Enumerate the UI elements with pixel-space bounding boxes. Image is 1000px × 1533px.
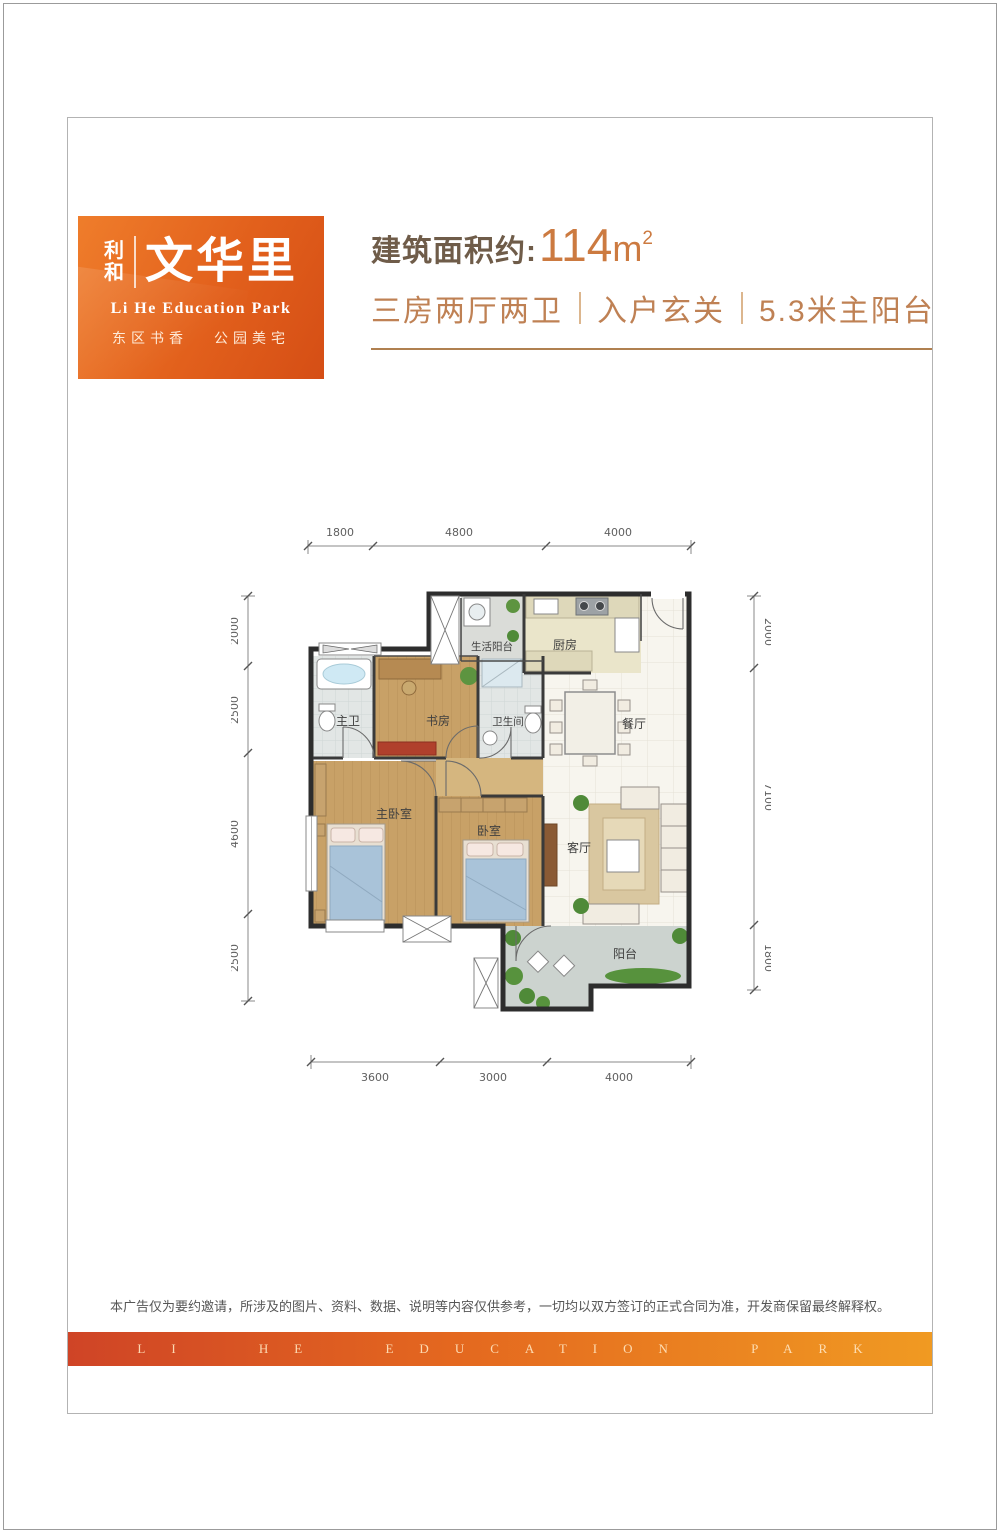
chair [618, 700, 630, 711]
dim-right-3: 1800 [762, 944, 771, 972]
bathtub-water [323, 664, 365, 684]
dim-left-4: 2500 [231, 944, 241, 972]
entry-opening [651, 590, 685, 599]
label-bathroom: 卫生间 [492, 715, 524, 728]
fridge [615, 618, 639, 652]
dim-bottom-1: 3600 [361, 1071, 389, 1084]
chair [550, 744, 562, 755]
logo-tagline-left: 东区书香 [112, 328, 188, 348]
area-label: 建筑面积约: [371, 226, 537, 270]
study-chair [402, 681, 416, 695]
feature-divider [579, 292, 581, 324]
dim-bottom-2: 3000 [479, 1071, 507, 1084]
chair [550, 700, 562, 711]
area-line: 建筑面积约: 114 m2 [371, 218, 932, 272]
flyer-card: 利 和 文华里 Li He Education Park 东区书香 公园美宅 建… [67, 117, 933, 1414]
label-master-bedroom: 主卧室 [376, 806, 412, 821]
label-kitchen: 厨房 [553, 637, 577, 652]
burner-1 [580, 602, 589, 611]
balcony-plant [672, 928, 688, 944]
footer-banner: LI HE EDUCATION PARK [68, 1332, 932, 1366]
logo-tagline-right: 公园美宅 [214, 328, 290, 348]
armchair-top [621, 787, 659, 809]
feature-rooms: 三房两厅两卫 [371, 286, 563, 330]
feature-divider [741, 292, 743, 324]
washing-machine-door [469, 604, 485, 620]
study-rug [378, 742, 436, 755]
label-service-balcony: 生活阳台 [471, 640, 513, 653]
area-unit-base: m [612, 228, 642, 269]
logo-row: 利 和 文华里 [78, 236, 324, 288]
master-blanket [330, 846, 382, 920]
logo-divider [134, 236, 136, 288]
brand-logo: 利 和 文华里 Li He Education Park 东区书香 公园美宅 [78, 216, 324, 379]
blanket [466, 859, 526, 920]
logo-prefix-char-2: 和 [104, 262, 125, 284]
floor-plan: 生活阳台 厨房 主卫 书房 卫生间 餐厅 主卧室 卧室 客厅 阳台 1800 4… [231, 506, 771, 1126]
sink [483, 731, 497, 745]
logo-tagline: 东区书香 公园美宅 [78, 328, 324, 348]
pillow [497, 843, 523, 856]
unit-header: 建筑面积约: 114 m2 三房两厅两卫 入户玄关 5.3米主阳台 [371, 218, 932, 350]
plant-study [460, 667, 478, 685]
toilet [319, 711, 335, 731]
window-master-bottom [326, 920, 384, 932]
dim-left-1: 2000 [231, 617, 241, 645]
label-master-bath: 主卫 [336, 714, 360, 728]
dim-right-2: 7100 [762, 783, 771, 811]
dim-left-3: 4600 [231, 820, 241, 848]
dim-bottom-line [311, 1055, 691, 1069]
nightstand [315, 910, 325, 922]
header-rule [371, 348, 932, 350]
balcony-plant [519, 988, 535, 1004]
corridor-floor [436, 758, 543, 796]
label-balcony: 阳台 [613, 946, 637, 961]
balcony-plant [505, 967, 523, 985]
feature-balcony: 5.3米主阳台 [759, 286, 935, 330]
toilet2 [525, 713, 541, 733]
burner-2 [596, 602, 605, 611]
dim-left-2: 2500 [231, 696, 241, 724]
pillow [331, 828, 355, 842]
footer-banner-text: LI HE EDUCATION PARK [111, 1341, 888, 1357]
pillow [359, 828, 383, 842]
plant-living-1 [573, 795, 589, 811]
logo-prefix: 利 和 [104, 240, 125, 285]
features-line: 三房两厅两卫 入户玄关 5.3米主阳台 [371, 286, 932, 330]
bench-bottom [583, 904, 639, 924]
dim-left-line [241, 596, 255, 1001]
logo-name: 文华里 [145, 238, 298, 286]
dim-top-3: 4000 [604, 526, 632, 539]
chair [550, 722, 562, 733]
dining-table [565, 692, 615, 754]
dim-right-1: 2000 [762, 618, 771, 646]
label-dining: 餐厅 [622, 716, 646, 731]
area-unit-sup: 2 [642, 228, 653, 249]
balcony-plant [505, 930, 521, 946]
logo-subtitle-en: Li He Education Park [78, 300, 324, 318]
area-value: 114 [539, 218, 612, 272]
chair [618, 744, 630, 755]
toilet2-tank [525, 706, 541, 713]
area-unit: m2 [612, 228, 653, 270]
dim-bottom-3: 4000 [605, 1071, 633, 1084]
label-bedroom: 卧室 [477, 823, 501, 838]
dim-top-line [308, 540, 691, 554]
chair [583, 680, 597, 690]
label-living: 客厅 [567, 840, 591, 855]
coffee-table [607, 840, 639, 872]
balcony-planter [605, 968, 681, 984]
feature-entry: 入户玄关 [597, 286, 725, 330]
dim-top-2: 4800 [445, 526, 473, 539]
wardrobe-master [315, 764, 326, 816]
chair [583, 756, 597, 766]
plant-service-1 [506, 599, 520, 613]
dim-right-line [747, 596, 761, 990]
toilet-tank [319, 704, 335, 711]
label-study: 书房 [426, 713, 450, 728]
flyer-page: 利 和 文华里 Li He Education Park 东区书香 公园美宅 建… [0, 0, 1000, 1533]
kitchen-sink [534, 599, 558, 614]
plant-living-2 [573, 898, 589, 914]
logo-prefix-char-1: 利 [104, 240, 125, 262]
disclaimer-text: 本广告仅为要约邀请，所涉及的图片、资料、数据、说明等内容仅供参考，一切均以双方签… [68, 1296, 932, 1315]
dim-top-1: 1800 [326, 526, 354, 539]
tv-cabinet [544, 824, 557, 886]
pillow [467, 843, 493, 856]
